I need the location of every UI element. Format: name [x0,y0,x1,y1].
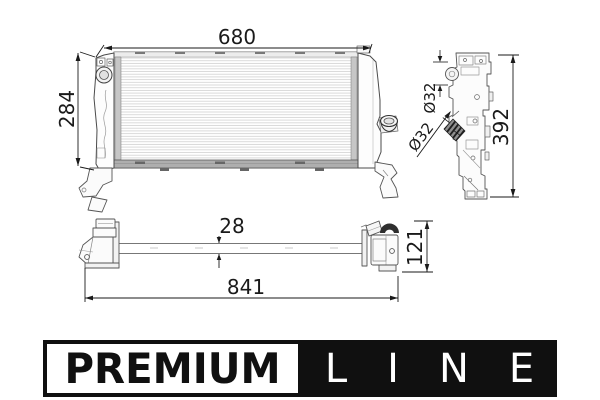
dim-core-depth [217,236,222,268]
dim-core-depth-label: 28 [219,214,244,238]
side-view: 392 Ø32 Ø32 [405,50,519,199]
premium-line-logo: PREMIUM LINE [43,340,557,397]
technical-drawing: 680 284 [0,0,600,340]
logo-line-box: LINE [302,340,557,397]
right-tank [357,46,398,168]
dim-top-port-diameter-label: Ø32 [421,83,439,114]
top-port [446,68,459,81]
dim-end-tank-height-label: 121 [403,228,427,266]
bottom-view: 28 841 121 [79,214,433,302]
left-mounting-bracket [79,168,112,212]
left-tank [94,53,114,171]
dim-core-width-label: 680 [218,25,256,49]
logo-line-text: LINE [325,346,574,392]
bottom-left-fitting [79,219,119,268]
right-mounting-bracket [375,162,398,198]
hose-fitting-cap [380,224,399,234]
dim-side-port-diameter-label: Ø32 [405,119,438,155]
front-view: 680 284 [55,25,398,212]
logo-premium-text: PREMIUM [64,344,280,393]
dim-overall-length-label: 841 [227,275,265,299]
bottom-right-fitting [361,221,399,271]
dim-overall-height-label: 392 [489,108,513,146]
radiator-drawing-page: 680 284 [0,0,600,400]
dim-core-height-label: 284 [55,90,79,128]
logo-premium-box: PREMIUM [47,344,298,393]
